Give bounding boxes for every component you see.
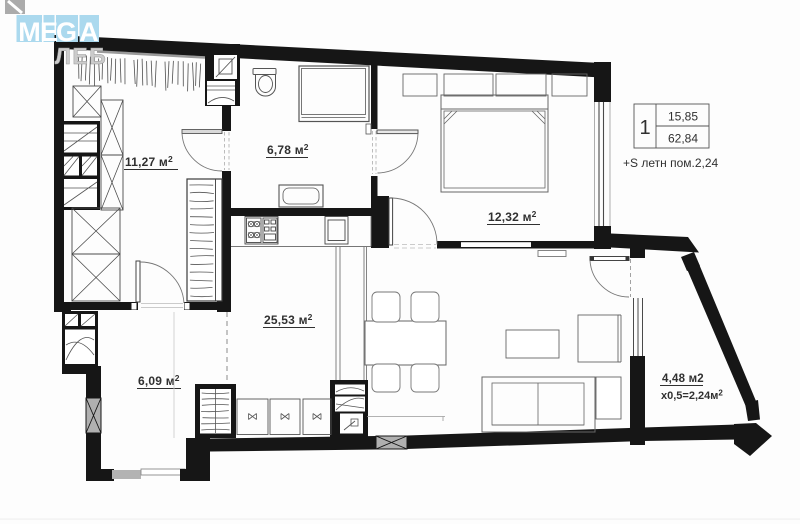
svg-text:+S летн пом.2,24: +S летн пом.2,24	[623, 156, 719, 170]
svg-text:25,53 м2: 25,53 м2	[264, 312, 313, 327]
svg-text:M: M	[18, 17, 41, 47]
svg-text:62,84: 62,84	[668, 132, 698, 146]
svg-text:х0,5=2,24м2: х0,5=2,24м2	[661, 389, 723, 403]
svg-text:ЛЕБ: ЛЕБ	[55, 43, 108, 69]
svg-text:6,09 м2: 6,09 м2	[138, 373, 180, 388]
svg-text:6,78 м2: 6,78 м2	[267, 142, 309, 157]
svg-text:1: 1	[639, 117, 650, 139]
svg-text:15,85: 15,85	[668, 110, 698, 124]
svg-text:11,27 м2: 11,27 м2	[125, 154, 173, 169]
svg-text:4,48 м2: 4,48 м2	[662, 373, 704, 385]
svg-text:12,32 м2: 12,32 м2	[488, 209, 537, 224]
